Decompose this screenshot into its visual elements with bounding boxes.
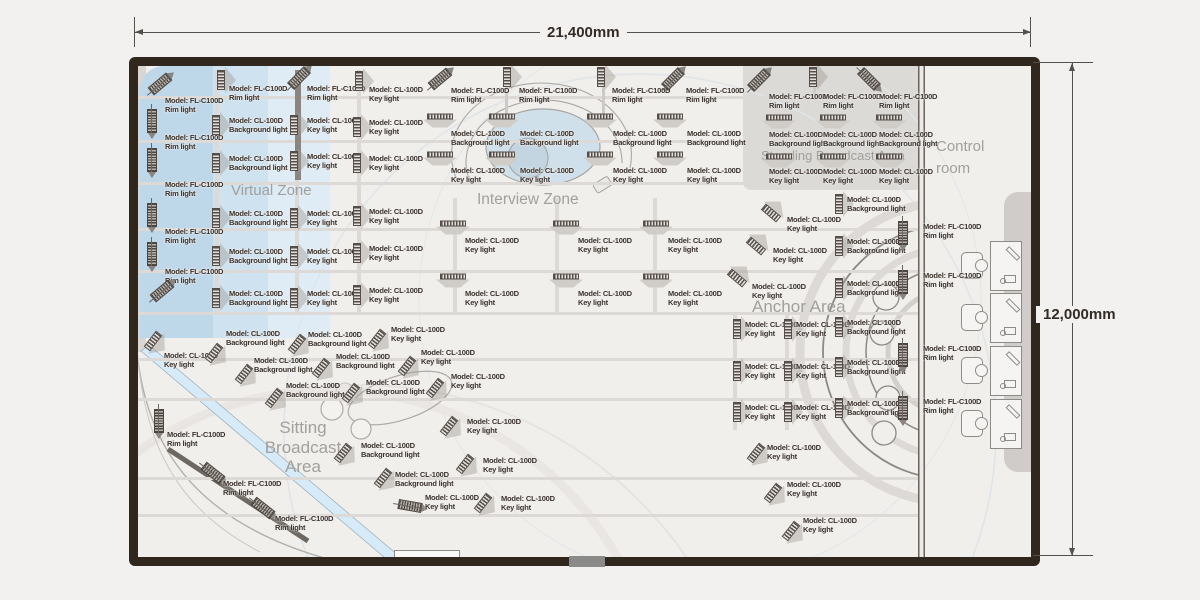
fixture-label: Model: FL-C100DRim light <box>229 85 287 102</box>
background-light-fixture-icon <box>212 246 220 266</box>
fixture-label: Model: CL-100DKey light <box>668 290 722 307</box>
key-light-fixture-icon <box>353 285 361 305</box>
background-light-fixture-icon <box>835 278 843 298</box>
key-light-fixture-icon <box>549 221 583 236</box>
fixture-label: Model: CL-100DBackground light <box>520 130 578 147</box>
fixture-label: Model: CL-100DKey light <box>787 481 841 498</box>
key-light-fixture-icon <box>485 152 519 167</box>
fixture-label: Model: CL-100DBackground light <box>229 155 287 172</box>
key-light-fixture-icon <box>290 151 298 171</box>
dimension-tick <box>1033 62 1093 63</box>
operator-head <box>975 311 988 324</box>
desk-pen-icon <box>1006 351 1021 366</box>
fixture-label: Model: CL-100DKey light <box>369 208 423 225</box>
bottom-wall-door <box>569 556 605 567</box>
rim-light-fixture-icon <box>217 70 225 90</box>
rim-light-fixture-icon <box>898 343 908 367</box>
fixture-label: Model: CL-100DKey light <box>465 290 519 307</box>
zone-label-control-room: Control room <box>936 136 984 180</box>
sitting-chair <box>321 398 343 420</box>
background-light-fixture-icon <box>816 115 850 130</box>
background-light-fixture-icon <box>212 288 220 308</box>
fixture-label: Model: FL-C100DRim light <box>923 345 981 362</box>
fixture-label: Model: CL-100DKey light <box>773 247 827 264</box>
fixture-label: Model: CL-100DBackground light <box>286 382 344 399</box>
operator-head <box>975 417 988 430</box>
light-track-vertical <box>653 198 657 312</box>
fixture-label: Model: CL-100DBackground light <box>229 210 287 227</box>
rim-light-fixture-icon <box>898 221 908 245</box>
background-light-fixture-icon <box>835 357 843 377</box>
light-track-horizontal <box>138 270 920 273</box>
fixture-label: Model: CL-100DKey light <box>467 418 521 435</box>
fixture-label: Model: CL-100DKey light <box>483 457 537 474</box>
control-room-desk <box>990 241 1022 291</box>
key-light-fixture-icon <box>784 319 792 339</box>
desk-phone-icon <box>1004 327 1016 335</box>
rim-light-fixture-icon <box>503 67 511 87</box>
background-light-fixture-icon <box>212 115 220 135</box>
key-light-fixture-icon <box>733 402 741 422</box>
key-light-fixture-icon <box>290 246 298 266</box>
width-dimension-label: 21,400mm <box>540 24 627 41</box>
fixture-label: Model: CL-100DKey light <box>369 287 423 304</box>
key-light-fixture-icon <box>436 274 470 289</box>
background-light-fixture-icon <box>835 194 843 214</box>
fixture-label: Model: CL-100DBackground light <box>769 131 827 148</box>
key-light-fixture-icon <box>353 206 361 226</box>
desk-phone-icon <box>1004 433 1016 441</box>
key-light-fixture-icon <box>733 319 741 339</box>
background-light-fixture-icon <box>423 114 457 129</box>
key-light-fixture-icon <box>733 361 741 381</box>
floor-arc <box>0 385 755 600</box>
fixture-label: Model: CL-100DBackground light <box>879 131 937 148</box>
fixture-label: Model: FL-C100DRim light <box>167 431 225 448</box>
fixture-label: Model: CL-100DKey light <box>803 517 857 534</box>
dimension-tick <box>134 17 135 47</box>
fixture-label: Model: CL-100DKey light <box>752 283 806 300</box>
key-light-fixture-icon <box>290 208 298 228</box>
background-light-fixture-icon <box>583 114 617 129</box>
fixture-label: Model: FL-C100DRim light <box>923 223 981 240</box>
key-light-fixture-icon <box>353 117 361 137</box>
control-room-desk <box>990 399 1022 449</box>
fixture-label: Model: CL-100DBackground light <box>823 131 881 148</box>
fixture-label: Model: CL-100DBackground light <box>226 330 284 347</box>
floor-platform <box>394 550 460 565</box>
fixture-label: Model: CL-100DKey light <box>578 237 632 254</box>
rim-light-fixture-icon <box>898 270 908 294</box>
fixture-label: Model: FL-C100DRim light <box>275 515 333 532</box>
fixture-label: Model: FL-C100DRim light <box>451 87 509 104</box>
fixture-label: Model: FL-C100DRim light <box>165 134 223 151</box>
height-dimension-label: 12,000mm <box>1036 306 1123 323</box>
control-room-desk <box>990 293 1022 343</box>
background-light-fixture-icon <box>835 236 843 256</box>
background-light-fixture-icon <box>212 208 220 228</box>
fixture-label: Model: CL-100DBackground light <box>229 117 287 134</box>
dimension-tick <box>1030 17 1031 47</box>
fixture-label: Model: FL-C100DRim light <box>769 93 827 110</box>
rim-light-fixture-icon <box>809 67 817 87</box>
anchor-chair <box>872 421 896 445</box>
fixture-label: Model: CL-100DBackground light <box>847 280 905 297</box>
key-light-fixture-icon <box>355 71 363 91</box>
fixture-label: Model: CL-100DKey light <box>769 168 823 185</box>
key-light-fixture-icon <box>436 221 470 236</box>
desk-phone-icon <box>1004 380 1016 388</box>
fixture-label: Model: CL-100DBackground light <box>847 319 905 336</box>
fixture-label: Model: FL-C100DRim light <box>165 97 223 114</box>
fixture-label: Model: FL-C100DRim light <box>823 93 881 110</box>
fixture-label: Model: CL-100DBackground light <box>366 379 424 396</box>
zone-label-sitting-line1: Sitting <box>258 418 348 438</box>
fixture-label: Model: CL-100DKey light <box>391 326 445 343</box>
key-light-fixture-icon <box>549 274 583 289</box>
zone-label-interview: Interview Zone <box>477 191 579 209</box>
key-light-fixture-icon <box>290 288 298 308</box>
fixture-label: Model: CL-100DKey light <box>369 86 423 103</box>
key-light-fixture-icon <box>290 115 298 135</box>
rim-light-fixture-icon <box>898 396 908 420</box>
control-room-desk <box>990 346 1022 396</box>
fixture-label: Model: CL-100DKey light <box>687 167 741 184</box>
zone-label-control-line1: Control <box>936 136 984 158</box>
key-light-fixture-icon <box>353 243 361 263</box>
fixture-label: Model: FL-C100DRim light <box>165 228 223 245</box>
rim-light-fixture-icon <box>147 109 157 133</box>
fixture-label: Model: FL-C100DRim light <box>686 87 744 104</box>
key-light-fixture-icon <box>353 153 361 173</box>
fixture-label: Model: CL-100DKey light <box>787 216 841 233</box>
key-light-fixture-icon <box>784 361 792 381</box>
background-light-fixture-icon <box>762 115 796 130</box>
zone-label-virtual: Virtual Zone <box>231 182 312 199</box>
fixture-label: Model: CL-100DBackground light <box>395 471 453 488</box>
light-track-vertical <box>555 198 559 312</box>
fixture-label: Model: CL-100DBackground light <box>847 196 905 213</box>
key-light-fixture-icon <box>639 221 673 236</box>
key-light-fixture-icon <box>653 152 687 167</box>
fixture-label: Model: FL-C100DRim light <box>879 93 937 110</box>
rim-light-fixture-icon <box>147 148 157 172</box>
key-light-fixture-icon <box>583 152 617 167</box>
zone-label-control-line2: room <box>936 158 984 180</box>
fixture-label: Model: CL-100DBackground light <box>847 400 905 417</box>
zone-label-sitting-line3: Area <box>258 457 348 477</box>
fixture-label: Model: CL-100DKey light <box>668 237 722 254</box>
zone-label-sitting: Sitting Broadcast Area <box>258 418 348 477</box>
fixture-label: Model: CL-100DKey light <box>520 167 574 184</box>
fixture-label: Model: CL-100DBackground light <box>308 331 366 348</box>
desk-pen-icon <box>1006 298 1021 313</box>
fixture-label: Model: CL-100DBackground light <box>847 238 905 255</box>
fixture-label: Model: CL-100DBackground light <box>613 130 671 147</box>
fixture-label: Model: CL-100DKey light <box>879 168 933 185</box>
studio-lighting-floorplan: Model: FL-C100DRim lightModel: FL-C100DR… <box>0 0 1200 600</box>
fixture-label: Model: CL-100DKey light <box>369 245 423 262</box>
operator-head <box>975 364 988 377</box>
fixture-label: Model: CL-100DKey light <box>578 290 632 307</box>
light-track-vertical <box>453 198 457 312</box>
background-light-fixture-icon <box>835 317 843 337</box>
fixture-label: Model: FL-C100DRim light <box>923 398 981 415</box>
key-light-fixture-icon <box>423 152 457 167</box>
background-light-fixture-icon <box>835 398 843 418</box>
background-light-fixture-icon <box>485 114 519 129</box>
fixture-label: Model: CL-100DBackground light <box>229 248 287 265</box>
fixture-label: Model: CL-100DBackground light <box>451 130 509 147</box>
background-light-fixture-icon <box>212 153 220 173</box>
fixture-label: Model: CL-100DKey light <box>369 155 423 172</box>
fixture-label: Model: CL-100DKey light <box>451 167 505 184</box>
fixture-label: Model: CL-100DBackground light <box>687 130 745 147</box>
fixture-label: Model: FL-C100DRim light <box>223 480 281 497</box>
fixture-label: Model: FL-C100DRim light <box>165 181 223 198</box>
fixture-label: Model: CL-100DKey light <box>613 167 667 184</box>
rim-light-fixture-icon <box>597 67 605 87</box>
rim-light-fixture-icon <box>147 242 157 266</box>
zone-label-sitting-line2: Broadcast <box>258 438 348 458</box>
desk-pen-icon <box>1006 246 1021 261</box>
key-light-fixture-icon <box>784 402 792 422</box>
key-light-fixture-icon <box>639 274 673 289</box>
background-light-fixture-icon <box>872 115 906 130</box>
light-track-vertical <box>357 70 361 312</box>
fixture-label: Model: FL-C100DRim light <box>519 87 577 104</box>
fixture-label: Model: CL-100DKey light <box>451 373 505 390</box>
dimension-tick <box>1033 555 1093 556</box>
sitting-chair <box>351 419 371 439</box>
fixture-label: Model: CL-100DKey light <box>501 495 555 512</box>
fixture-label: Model: CL-100DKey light <box>465 237 519 254</box>
fixture-label: Model: CL-100DBackground light <box>336 353 394 370</box>
fixture-label: Model: CL-100DBackground light <box>229 290 287 307</box>
fixture-label: Model: CL-100DKey light <box>823 168 877 185</box>
desk-phone-icon <box>1004 275 1016 283</box>
desk-pen-icon <box>1006 404 1021 419</box>
fixture-label: Model: CL-100DKey light <box>421 349 475 366</box>
fixture-label: Model: FL-C100DRim light <box>923 272 981 289</box>
fixture-label: Model: CL-100DKey light <box>425 494 479 511</box>
fixture-label: Model: CL-100DKey light <box>767 444 821 461</box>
background-light-fixture-icon <box>653 114 687 129</box>
rim-light-fixture-icon <box>147 203 157 227</box>
fixture-label: Model: CL-100DKey light <box>369 119 423 136</box>
fixture-label: Model: CL-100DBackground light <box>361 442 419 459</box>
fixture-label: Model: CL-100DBackground light <box>847 359 905 376</box>
rim-light-fixture-icon <box>154 409 164 433</box>
